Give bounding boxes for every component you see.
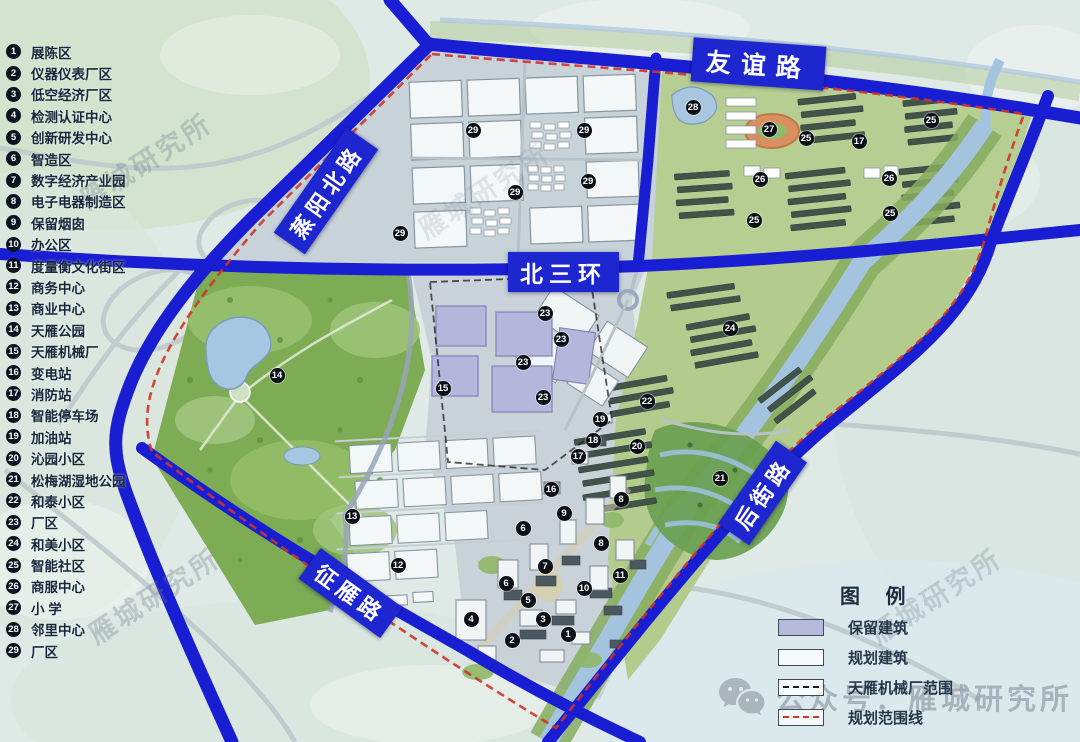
legend-item-18: 18智能停车场 [6,405,126,426]
legend-box-title: 图 例 [840,580,1068,609]
map-marker-4: 4 [464,612,479,627]
map-marker-23: 23 [554,332,569,347]
legend-item-6: 6智造区 [6,148,126,169]
map-marker-13: 13 [345,509,360,524]
legend-item-number: 20 [6,451,21,466]
legend-item-label: 和泰小区 [31,491,85,511]
legend-item-label: 检测认证中心 [31,106,112,126]
legend-item-label: 度量衡文化街区 [31,256,126,276]
legend-item-24: 24和美小区 [6,533,126,554]
legend-list: 1展陈区2仪器仪表厂区3低空经济厂区4检测认证中心5创新研发中心6智造区7数字经… [6,41,126,661]
legend-item-number: 2 [6,66,21,81]
legend-item-label: 松梅湖湿地公园 [31,470,126,490]
road-label-beisanhuan: 北三环 [508,252,619,292]
legend-item-11: 11度量衡文化街区 [6,255,126,276]
legend-box-entry-label: 保留建筑 [848,617,908,638]
legend-item-label: 消防站 [31,384,72,404]
road-label-youyi: 友谊路 [691,37,827,90]
legend-item-number: 9 [6,215,21,230]
legend-item-label: 沁园小区 [31,448,85,468]
legend-item-label: 天雁公园 [31,320,85,340]
legend-item-number: 16 [6,365,21,380]
legend-item-27: 27小 学 [6,597,126,618]
legend-item-23: 23厂区 [6,512,126,533]
legend-box: 图 例 保留建筑规划建筑天雁机械厂范围规划范围线 [778,580,1068,739]
legend-item-label: 智能停车场 [31,405,99,425]
legend-item-26: 26商服中心 [6,576,126,597]
map-marker-24: 24 [723,321,738,336]
map-marker-18: 18 [586,433,601,448]
map-marker-26: 26 [882,171,897,186]
legend-item-label: 智造区 [31,149,72,169]
map-marker-14: 14 [270,368,285,383]
legend-item-label: 商务中心 [31,277,85,297]
legend-item-label: 厂区 [31,641,58,661]
map-marker-25: 25 [799,131,814,146]
map-marker-27: 27 [762,122,777,137]
map-marker-21: 21 [713,471,728,486]
legend-item-number: 26 [6,579,21,594]
map-marker-29: 29 [581,174,596,189]
map-marker-16: 16 [544,482,559,497]
legend-item-number: 29 [6,643,21,658]
legend-box-entry: 保留建筑 [778,619,1068,635]
legend-swatch-reserved [778,619,824,636]
legend-item-1: 1展陈区 [6,41,126,62]
legend-item-label: 仪器仪表厂区 [31,63,112,83]
map-marker-2: 2 [505,633,520,648]
legend-item-number: 6 [6,151,21,166]
legend-item-label: 加油站 [31,427,72,447]
legend-item-2: 2仪器仪表厂区 [6,62,126,83]
legend-box-entry: 天雁机械厂范围 [778,679,1068,695]
legend-item-number: 15 [6,344,21,359]
map-marker-17: 17 [852,134,867,149]
map-marker-15: 15 [436,381,451,396]
legend-item-label: 商服中心 [31,576,85,596]
map-marker-12: 12 [391,558,406,573]
legend-item-label: 电子电器制造区 [31,191,126,211]
map-marker-19: 19 [593,412,608,427]
legend-item-number: 27 [6,600,21,615]
legend-swatch-factory-range [778,679,824,696]
legend-item-21: 21松梅湖湿地公园 [6,469,126,490]
legend-item-number: 19 [6,429,21,444]
legend-item-number: 8 [6,194,21,209]
map-marker-23: 23 [536,390,551,405]
legend-item-7: 7数字经济产业园 [6,169,126,190]
legend-item-label: 邻里中心 [31,619,85,639]
legend-item-20: 20沁园小区 [6,447,126,468]
map-marker-8: 8 [594,536,609,551]
map-marker-10: 10 [577,581,592,596]
legend-item-number: 7 [6,173,21,188]
map-marker-25: 25 [924,113,939,128]
map-marker-6: 6 [516,521,531,536]
legend-item-28: 28邻里中心 [6,619,126,640]
legend-item-number: 10 [6,237,21,252]
legend-box-entry-label: 规划范围线 [848,707,923,728]
legend-item-number: 25 [6,558,21,573]
map-marker-8: 8 [614,492,629,507]
planning-map-page: 1展陈区2仪器仪表厂区3低空经济厂区4检测认证中心5创新研发中心6智造区7数字经… [0,0,1080,742]
legend-item-number: 13 [6,301,21,316]
legend-item-number: 14 [6,322,21,337]
map-marker-26: 26 [753,172,768,187]
legend-swatch-boundary [778,709,824,726]
legend-item-number: 3 [6,87,21,102]
legend-item-number: 24 [6,536,21,551]
map-marker-1: 1 [561,627,576,642]
map-marker-17: 17 [571,449,586,464]
legend-item-label: 低空经济厂区 [31,84,112,104]
legend-item-3: 3低空经济厂区 [6,84,126,105]
map-marker-29: 29 [577,123,592,138]
map-marker-22: 22 [640,394,655,409]
legend-item-number: 18 [6,408,21,423]
legend-item-12: 12商务中心 [6,276,126,297]
legend-item-label: 厂区 [31,512,58,532]
legend-item-label: 小 学 [31,598,62,618]
legend-item-15: 15天雁机械厂 [6,340,126,361]
legend-item-label: 数字经济产业园 [31,170,126,190]
legend-item-19: 19加油站 [6,426,126,447]
map-marker-25: 25 [747,213,762,228]
map-marker-29: 29 [466,123,481,138]
legend-item-number: 5 [6,130,21,145]
legend-item-label: 展陈区 [31,42,72,62]
legend-item-label: 保留烟囱 [31,213,85,233]
legend-item-number: 11 [6,258,21,273]
map-marker-9: 9 [557,506,572,521]
legend-item-label: 和美小区 [31,534,85,554]
legend-box-entry: 规划范围线 [778,709,1068,725]
map-marker-23: 23 [538,306,553,321]
legend-item-number: 12 [6,279,21,294]
map-marker-6: 6 [499,576,514,591]
legend-item-14: 14天雁公园 [6,319,126,340]
legend-item-8: 8电子电器制造区 [6,191,126,212]
legend-item-label: 变电站 [31,363,72,383]
map-marker-23: 23 [516,355,531,370]
map-marker-29: 29 [508,185,523,200]
factory-range-dash [783,686,819,688]
legend-item-label: 创新研发中心 [31,127,112,147]
legend-item-number: 4 [6,108,21,123]
map-marker-29: 29 [393,226,408,241]
map-marker-20: 20 [630,439,645,454]
legend-item-number: 23 [6,515,21,530]
legend-item-number: 17 [6,386,21,401]
legend-box-entry-label: 规划建筑 [848,647,908,668]
map-marker-11: 11 [613,568,628,583]
legend-swatch-planned [778,649,824,666]
legend-box-entry: 规划建筑 [778,649,1068,665]
legend-item-label: 办公区 [31,234,72,254]
map-marker-25: 25 [883,206,898,221]
legend-item-label: 天雁机械厂 [31,341,99,361]
legend-item-10: 10办公区 [6,234,126,255]
legend-box-entry-label: 天雁机械厂范围 [848,677,953,698]
legend-item-5: 5创新研发中心 [6,127,126,148]
legend-item-13: 13商业中心 [6,298,126,319]
legend-item-4: 4检测认证中心 [6,105,126,126]
map-marker-3: 3 [536,612,551,627]
legend-item-number: 1 [6,44,21,59]
legend-item-label: 商业中心 [31,298,85,318]
legend-box-entries: 保留建筑规划建筑天雁机械厂范围规划范围线 [778,619,1068,725]
map-marker-5: 5 [521,593,536,608]
legend-item-25: 25智能社区 [6,554,126,575]
legend-item-22: 22和泰小区 [6,490,126,511]
legend-item-number: 22 [6,493,21,508]
legend-item-number: 21 [6,472,21,487]
legend-item-29: 29厂区 [6,640,126,661]
legend-item-16: 16变电站 [6,362,126,383]
map-marker-7: 7 [538,559,553,574]
legend-item-number: 28 [6,622,21,637]
boundary-dash [783,716,819,718]
map-marker-28: 28 [686,100,701,115]
legend-item-17: 17消防站 [6,383,126,404]
legend-item-label: 智能社区 [31,555,85,575]
legend-item-9: 9保留烟囱 [6,212,126,233]
